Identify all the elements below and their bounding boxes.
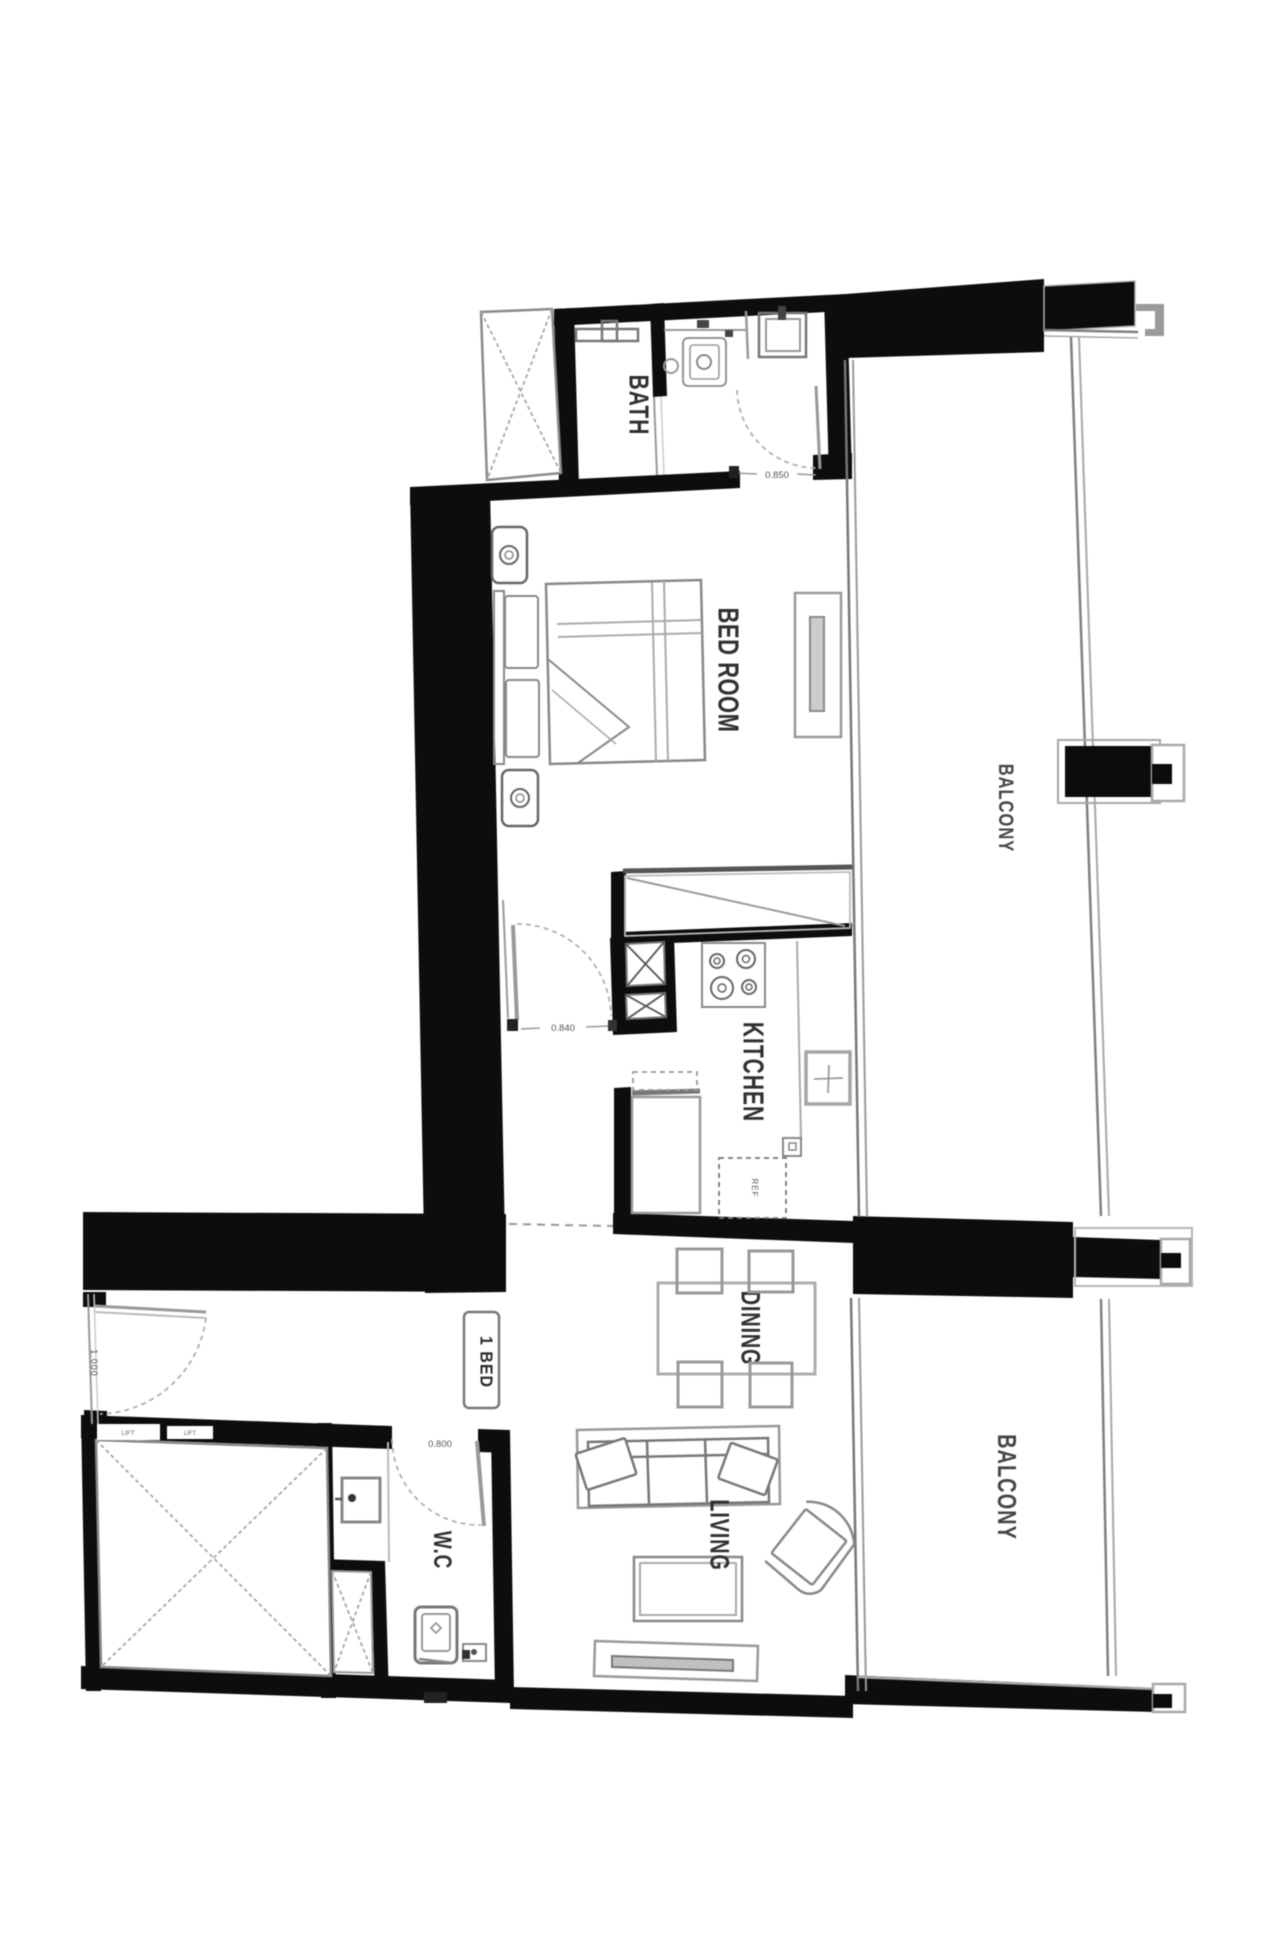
svg-text:1 BED: 1 BED [476,1336,496,1388]
svg-text:LIFT: LIFT [184,1431,197,1437]
svg-text:0.850: 0.850 [765,470,789,481]
svg-text:KITCHEN: KITCHEN [737,1022,769,1122]
svg-text:0.800: 0.800 [428,1439,452,1450]
svg-text:0.840: 0.840 [551,1023,575,1034]
svg-text:BALCONY: BALCONY [994,764,1018,853]
svg-text:LIVING: LIVING [704,1499,735,1570]
svg-text:BED ROOM: BED ROOM [712,608,743,733]
svg-text:LIFT: LIFT [121,1430,134,1437]
svg-text:DINING: DINING [735,1291,766,1366]
svg-text:1.000: 1.000 [89,1349,99,1377]
svg-text:W.C: W.C [428,1531,456,1569]
svg-text:BALCONY: BALCONY [992,1434,1021,1540]
svg-text:BATH: BATH [623,375,653,436]
svg-text:REF: REF [750,1179,759,1198]
